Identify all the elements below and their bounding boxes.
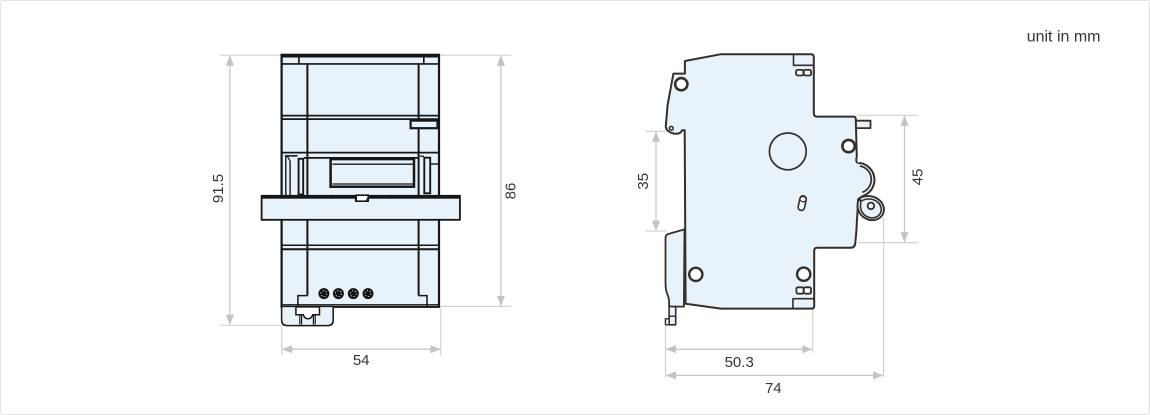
svg-text:54: 54: [353, 352, 370, 369]
svg-text:74: 74: [765, 380, 782, 397]
svg-text:45: 45: [910, 169, 927, 186]
svg-text:50.3: 50.3: [725, 354, 754, 371]
svg-text:unit in mm: unit in mm: [1027, 29, 1101, 46]
svg-text:35: 35: [635, 173, 652, 190]
svg-text:86: 86: [502, 183, 519, 200]
svg-text:91.5: 91.5: [210, 174, 227, 203]
